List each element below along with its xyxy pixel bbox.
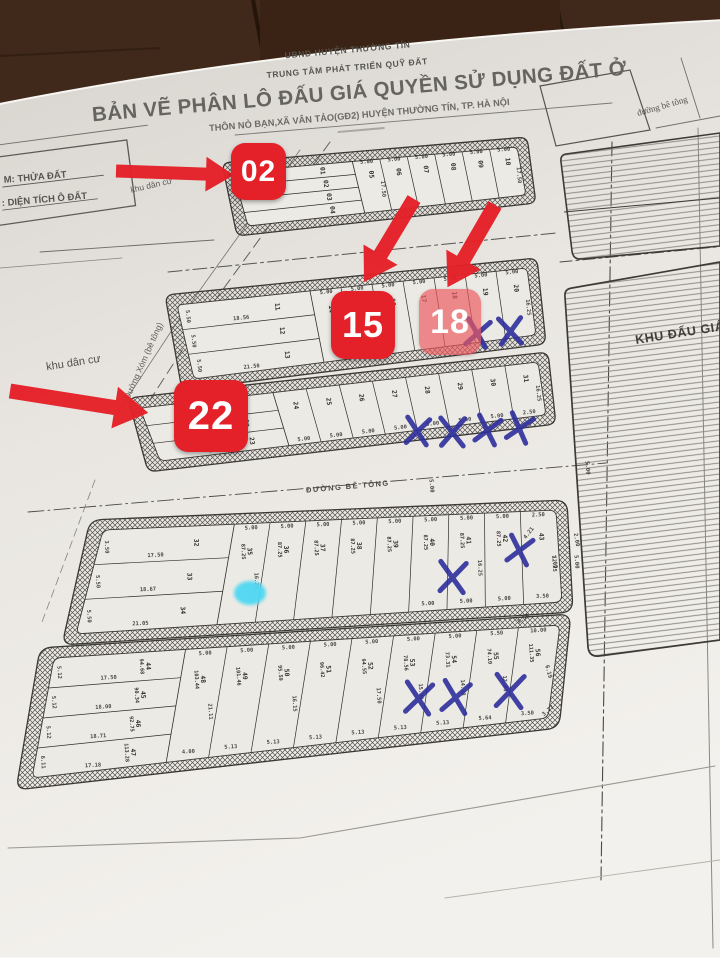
plot-number: 20: [512, 284, 521, 293]
plot-dimension: 5.00: [282, 645, 295, 652]
plot-dimension: 5.00: [240, 648, 253, 655]
plot-dimension: 17.50: [100, 675, 117, 682]
plot-dimension: 5.00: [245, 525, 258, 532]
plot-number: 27: [390, 390, 399, 399]
plot-number: 09: [476, 160, 485, 169]
plot-dimension: 5.13: [351, 730, 364, 737]
plot-number: 22: [242, 419, 251, 428]
plot-number: 43: [537, 533, 545, 541]
plot-dimension: 5.50: [94, 575, 101, 588]
plot-dimension: 3.50: [103, 540, 110, 553]
plot-number: 23: [248, 437, 257, 446]
plot-number: 06: [394, 168, 403, 177]
plot-number: 32: [192, 539, 200, 547]
plot-dimension: 5.00: [316, 522, 329, 529]
plot-dimension: 5.00: [424, 517, 437, 524]
plot-dimension: 5.00: [448, 633, 461, 640]
plot-number: 08: [449, 163, 458, 172]
plot-number: 16: [389, 298, 398, 307]
plot-dimension: 5.00: [281, 523, 294, 530]
plot-dimension: 5.00: [198, 650, 211, 657]
plot-dimension: 2.50: [532, 512, 545, 519]
plot-dimension: 5.00: [365, 639, 378, 646]
plot-dimension: 5.64: [478, 715, 491, 722]
plot-dimension: 3.50: [536, 593, 549, 600]
plot-number: 05: [367, 170, 376, 179]
plot-dimension: 4.00: [182, 749, 195, 756]
plot-dimension: 18.67: [140, 587, 156, 594]
plot-dimension: 16.25: [476, 560, 483, 576]
plot-map-drawing: UBND HUYỆN THƯỜNG TÍN TRUNG TÂM PHÁT TRI…: [0, 0, 720, 958]
plot-dimension: 5.13: [436, 720, 449, 727]
plot-dimension: 5.00: [496, 514, 509, 521]
plot-dimension: 10.00: [530, 627, 547, 634]
plot-number: 30: [489, 378, 498, 387]
plot-dimension: 5.00: [352, 520, 365, 527]
plot-number: 19: [481, 287, 490, 296]
plot-dimension: 5.00: [407, 636, 420, 643]
plot-number: 03: [325, 193, 334, 202]
plot-dimension: 21.11: [206, 703, 213, 720]
plot-dimension: 5.13: [267, 739, 280, 746]
plot-number: 10: [504, 157, 513, 166]
plot-number: 15: [358, 301, 367, 310]
plot-dimension: 5.00: [442, 151, 455, 158]
plot-dimension: 5.00: [415, 154, 428, 161]
plot-number: 17: [419, 294, 428, 303]
plot-dimension: 5.13: [309, 734, 322, 741]
plot-dimension: 18.00: [95, 704, 112, 711]
plot-dimension: 5.12: [44, 726, 51, 739]
plot-number: 01: [318, 167, 327, 176]
plot-dimension: 5.50: [85, 610, 92, 623]
plot-dimension: 5.00: [583, 461, 590, 476]
plot-number: 14: [327, 305, 336, 314]
plot-number: 26: [357, 393, 366, 402]
plot-dimension: 5.00: [360, 159, 373, 166]
plot-dimension: 6.11: [39, 756, 46, 769]
plot-dimension: 5.00: [572, 555, 579, 570]
plot-number: 31: [521, 374, 530, 383]
plot-dimension: 5.00: [460, 515, 473, 522]
plot-number: 04: [328, 206, 337, 215]
plot-dimension: 5.00: [427, 479, 434, 494]
plot-dimension: 5.00: [387, 156, 400, 163]
plot-dimension: 5.00: [421, 601, 434, 608]
plot-number: 28: [423, 386, 432, 395]
plot-dimension: 5.13: [394, 725, 407, 732]
plot-dimension: 5.00: [388, 519, 401, 526]
plot-dimension: 5.13: [224, 744, 237, 751]
photo-of-auction-plot-map: UBND HUYỆN THƯỜNG TÍN TRUNG TÂM PHÁT TRI…: [0, 0, 720, 958]
cyan-dot-marker: [234, 581, 266, 605]
plot-number: 12: [278, 326, 287, 335]
plot-number: 07: [422, 165, 431, 174]
plot-number: 11: [273, 302, 282, 311]
plot-number: 25: [324, 397, 333, 406]
plot-dimension: 5.00: [470, 149, 483, 156]
plot-number: 29: [456, 382, 465, 391]
plot-dimension: 3.50: [521, 710, 534, 717]
plot-dimension: 5.12: [55, 666, 62, 679]
plot-dimension: 5.00: [460, 598, 473, 605]
plot-dimension: 21.05: [132, 621, 148, 628]
plot-number: 18: [450, 291, 459, 300]
plot-dimension: 5.00: [498, 596, 511, 603]
plot-dimension: 5.50: [490, 630, 503, 637]
plot-dimension: 5.00: [323, 642, 336, 649]
plot-number: 13: [283, 350, 292, 359]
plot-dimension: 5.00: [497, 147, 510, 154]
auction-area-blocks: [561, 133, 720, 656]
plot-dimension: 5.12: [50, 696, 57, 709]
plot-number: 24: [291, 401, 300, 410]
plot-dimension: 17.18: [85, 762, 102, 769]
plot-number: 21: [236, 401, 245, 410]
plot-dimension: 16.15: [290, 695, 297, 712]
plot-number: 34: [179, 606, 187, 614]
plot-dimension: 18.71: [90, 733, 107, 740]
plot-number: 33: [185, 572, 193, 580]
plot-dimension: 17.50: [375, 687, 382, 704]
plot-number: 02: [321, 180, 330, 189]
plot-dimension: 17.50: [147, 552, 163, 559]
